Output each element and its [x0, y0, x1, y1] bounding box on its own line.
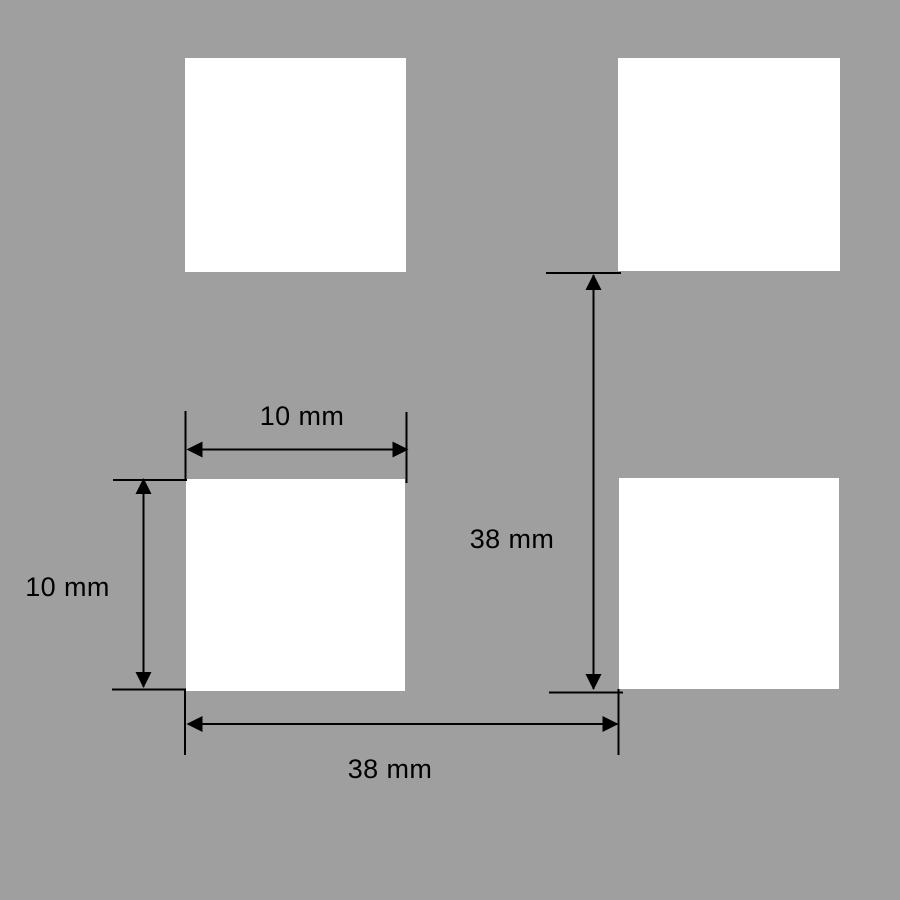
- svg-text:10 mm: 10 mm: [25, 572, 110, 602]
- svg-text:38 mm: 38 mm: [470, 524, 555, 554]
- svg-text:38 mm: 38 mm: [348, 754, 433, 784]
- svg-text:10 mm: 10 mm: [260, 401, 345, 431]
